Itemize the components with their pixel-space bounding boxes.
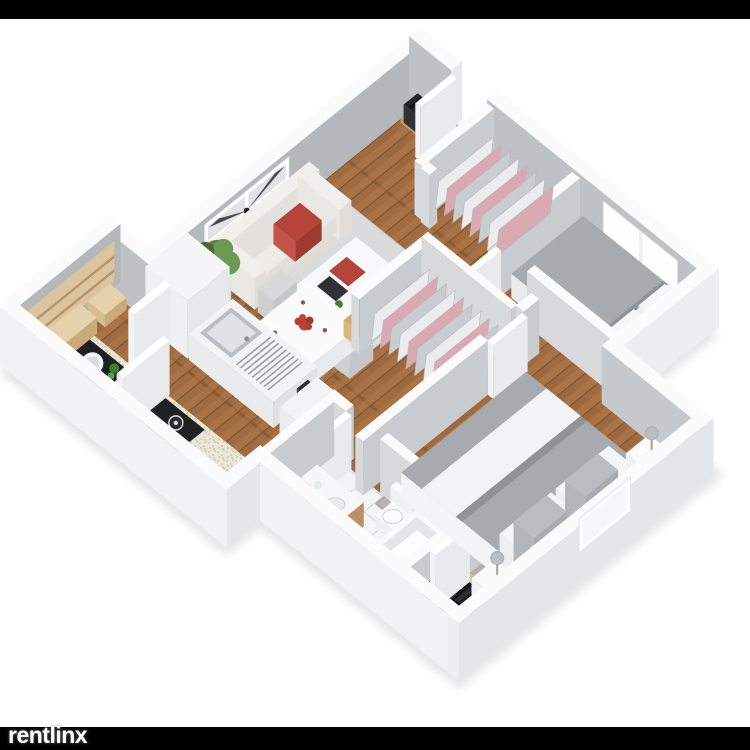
floor-plan-render: rentlinx — [0, 0, 750, 750]
top-letterbox-bar — [0, 0, 750, 19]
floor-plan-screenshot: rentlinx — [0, 0, 750, 750]
bottom-letterbox-bar — [0, 727, 750, 750]
rentlinx-watermark: rentlinx — [8, 722, 88, 748]
